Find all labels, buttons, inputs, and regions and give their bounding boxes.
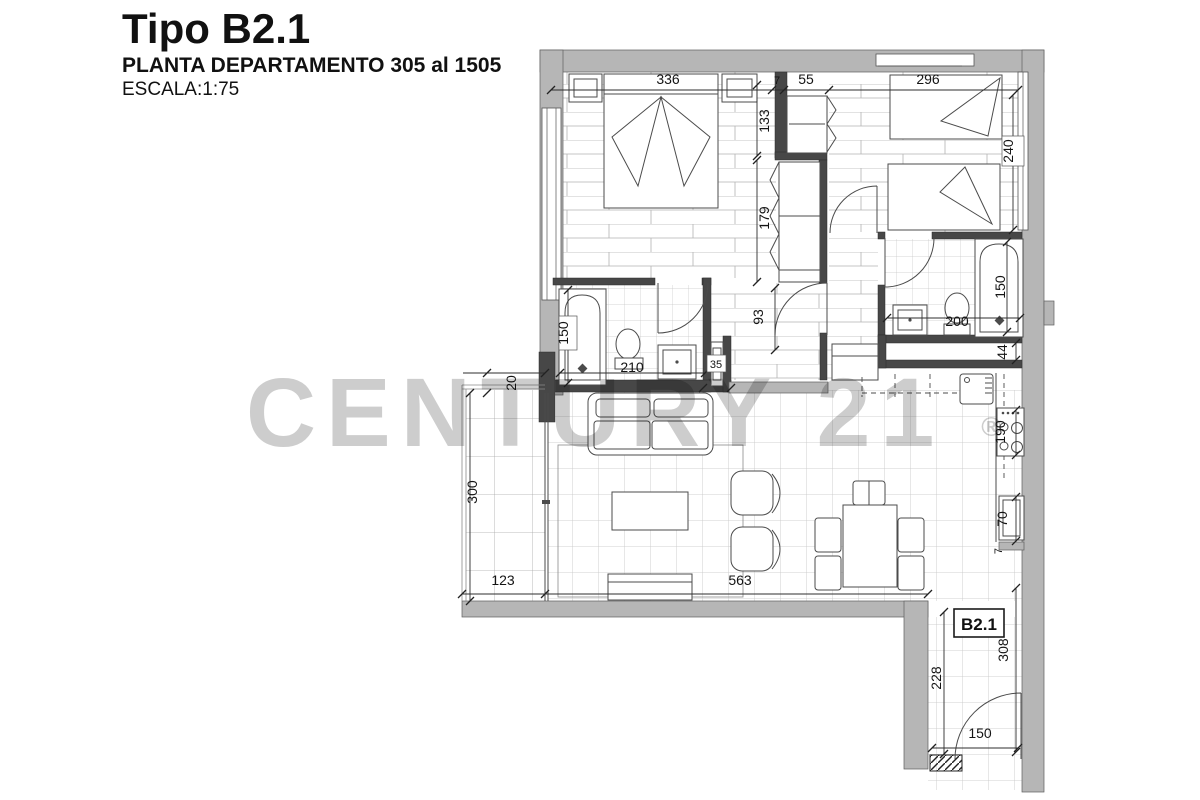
top-wall-niche [876, 54, 974, 66]
dim-duct: 44 [994, 344, 1010, 360]
floorplan-page: Tipo B2.1 PLANTA DEPARTAMENTO 305 al 150… [0, 0, 1200, 800]
tv-stand [608, 574, 692, 600]
wall-bath2-top-b [932, 232, 1022, 239]
dining-chair-right1 [898, 518, 924, 552]
dim-closet-b1: 179 [756, 206, 772, 230]
registered-icon: ® [981, 412, 1001, 442]
dim-living-width: 563 [728, 572, 752, 588]
plan-type-title: Tipo B2.1 [122, 6, 501, 52]
dim-counter-end: 7 [993, 548, 1005, 554]
dim-bath1-length: 150 [555, 321, 571, 345]
entry-threshold-hatch [930, 755, 962, 771]
dim-wall-top: 7 [774, 75, 780, 87]
sliding-door-handle [542, 500, 550, 504]
dining-table [843, 505, 897, 587]
closet-bedroom1-base [779, 270, 820, 282]
dim-closet-b2: 133 [756, 109, 772, 133]
dim-entry-right: 308 [995, 638, 1011, 662]
wall-bath1-top-a [553, 278, 655, 285]
dim-entry-door: 150 [968, 725, 992, 741]
dim-closet-width: 55 [798, 71, 814, 87]
bath1-toilet-bowl [616, 329, 640, 359]
dim-terrace-depth: 300 [464, 480, 480, 504]
dining-chair-left2 [815, 556, 841, 590]
title-block: Tipo B2.1 PLANTA DEPARTAMENTO 305 al 150… [122, 6, 501, 101]
hall-floor-upper [829, 238, 878, 283]
armchair-1 [731, 471, 780, 515]
wall-corridor-left [904, 601, 928, 769]
dim-bedroom2-width: 296 [916, 71, 940, 87]
wall-right-pilaster [1044, 301, 1054, 325]
dim-bath2-width: 200 [945, 313, 969, 329]
dim-fridge: 70 [994, 511, 1010, 527]
dining-chair-right2 [898, 556, 924, 590]
dim-entry-left: 228 [928, 666, 944, 690]
wall-bath2-top-a [878, 232, 885, 239]
floorplan-drawing: B2.1 336 7 55 296 133 240 179 150 93 210… [0, 0, 1200, 800]
dim-hall-door: 93 [750, 309, 766, 325]
dim-terrace-width: 123 [491, 572, 515, 588]
bed2b [888, 164, 1000, 230]
century21-watermark: CENTURY 21 ® [246, 358, 1001, 467]
dim-bedroom2-depth: 240 [1000, 139, 1016, 163]
bath2-sink-drain [908, 318, 911, 321]
unit-label: B2.1 [961, 615, 997, 634]
wall-bath2-left [878, 285, 885, 335]
dining-chair-left1 [815, 518, 841, 552]
dim-bath2-length: 150 [992, 275, 1008, 299]
plan-subtitle: PLANTA DEPARTAMENTO 305 al 1505 [122, 54, 501, 78]
plan-scale: ESCALA:1:75 [122, 79, 501, 101]
armchair-2 [731, 527, 780, 571]
bedroom1-window [542, 108, 561, 300]
dim-bedroom1-width: 336 [656, 71, 680, 87]
coffee-table [612, 492, 688, 530]
wall-living-bottom [462, 601, 928, 617]
watermark-brand: CENTURY 21 [246, 358, 944, 467]
unit-label-box: B2.1 [954, 609, 1004, 637]
